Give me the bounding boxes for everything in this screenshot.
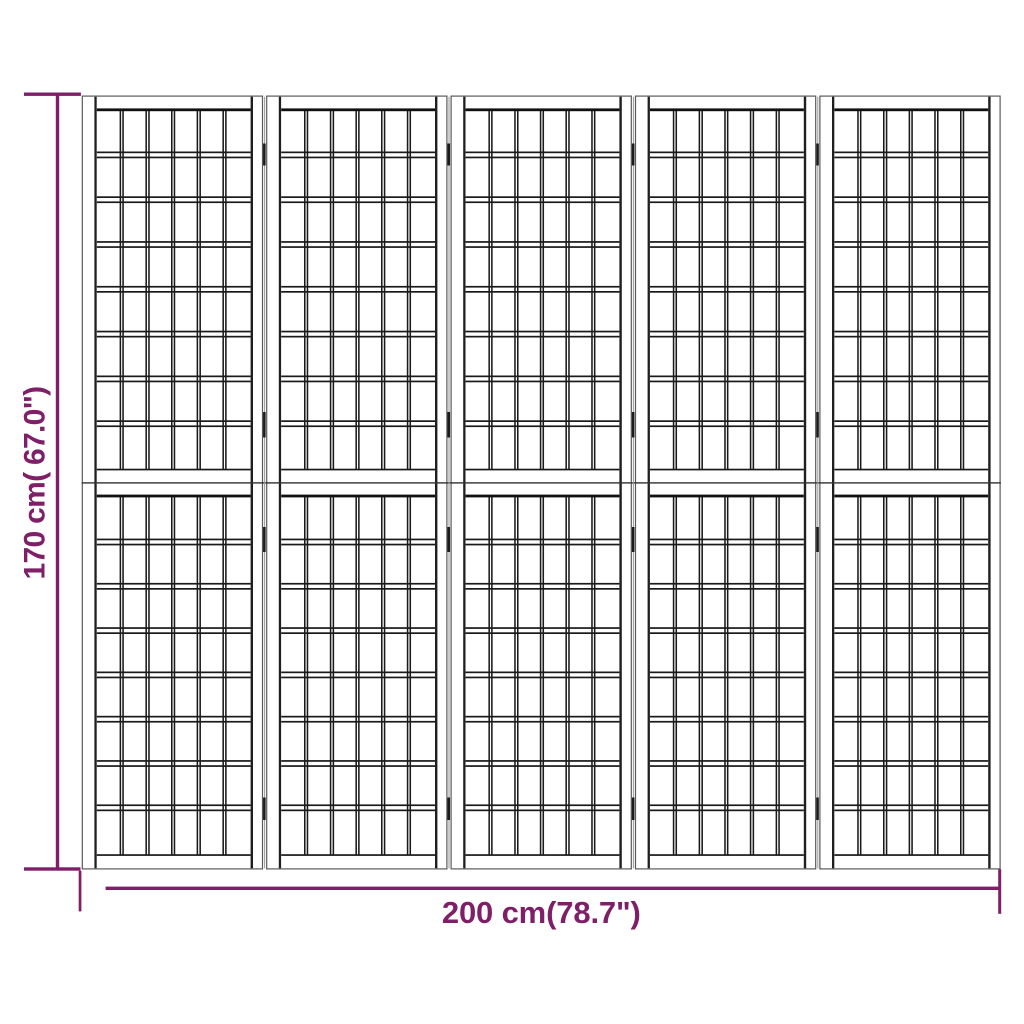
svg-text:200 cm(78.7"): 200 cm(78.7")	[442, 895, 641, 930]
svg-text:170 cm( 67.0"): 170 cm( 67.0")	[19, 387, 52, 580]
